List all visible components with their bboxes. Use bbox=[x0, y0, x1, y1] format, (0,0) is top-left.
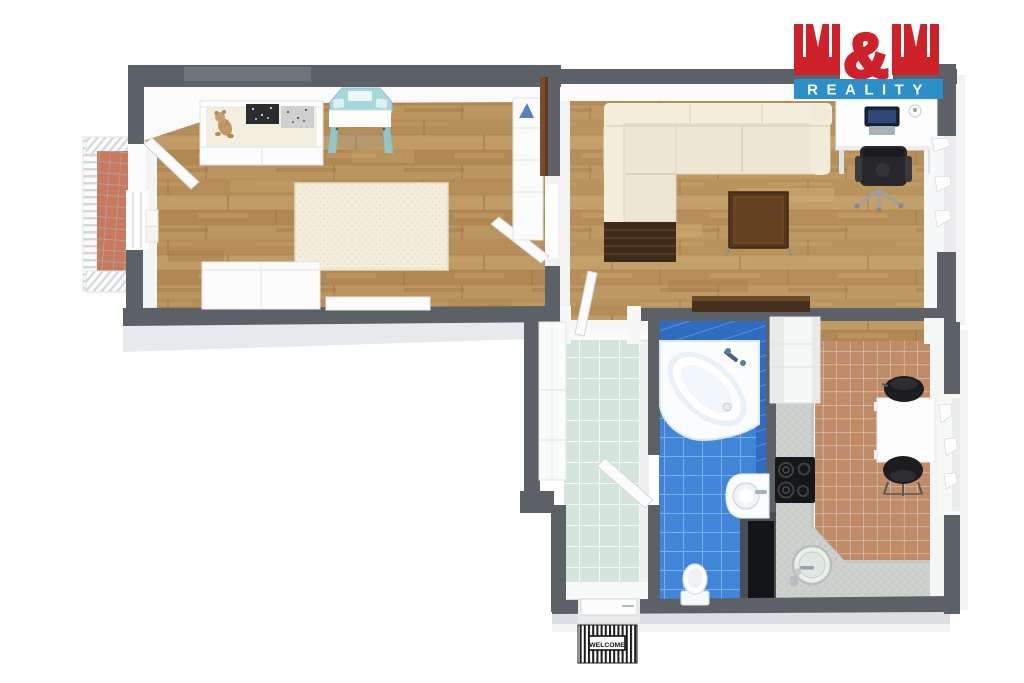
svg-text:REALITY: REALITY bbox=[807, 82, 931, 99]
svg-text:WELCOME: WELCOME bbox=[589, 642, 625, 649]
